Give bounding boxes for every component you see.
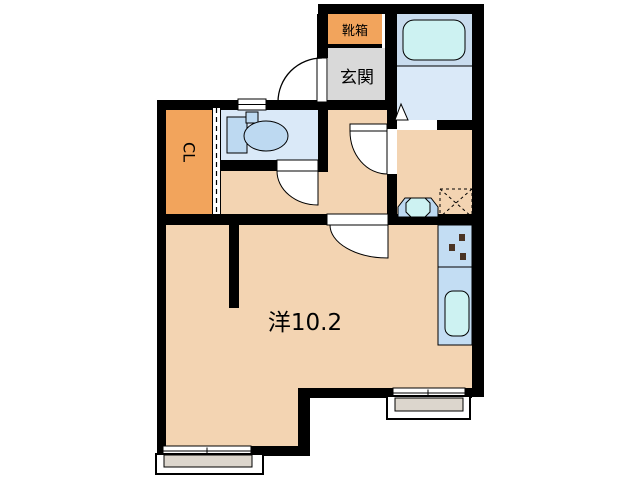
wall-toilet-bottom [221, 160, 277, 171]
floor-plan-page: 靴箱 玄関 CL 洋10.2 [0, 0, 640, 480]
wall-step [298, 388, 310, 456]
balcony-left [156, 454, 263, 474]
kitchen-sink-icon [445, 291, 469, 336]
floor-plan: 靴箱 玄関 CL 洋10.2 [0, 0, 640, 480]
shoebox-label: 靴箱 [342, 23, 368, 39]
toilet-flush-icon [246, 112, 258, 123]
washbasin-bowl-icon [406, 198, 430, 217]
closet-door [212, 108, 221, 214]
entrance-door [278, 58, 327, 102]
toilet-window [238, 99, 266, 110]
toilet-bowl-icon [244, 121, 288, 151]
wall-entrance-left-upper [317, 14, 328, 58]
entrance-label: 玄関 [340, 68, 374, 88]
closet-label: CL [180, 142, 199, 162]
wall-entrance-bath-divider [385, 14, 397, 104]
wall-right [472, 4, 484, 397]
wall-shoebox-entrance-divider [328, 44, 382, 48]
wall-left [157, 100, 166, 455]
wall-bath-washroom-divider [437, 120, 472, 130]
balcony-right [387, 396, 470, 419]
main-room-label: 洋10.2 [268, 310, 342, 336]
wall-hall-washroom-lower [387, 174, 397, 217]
wall-interior-stub [229, 225, 239, 308]
bathtub-icon [403, 20, 465, 60]
wall-top [318, 4, 484, 14]
wall-toilet-right [318, 100, 328, 172]
wall-upper-horizontal [157, 100, 397, 110]
